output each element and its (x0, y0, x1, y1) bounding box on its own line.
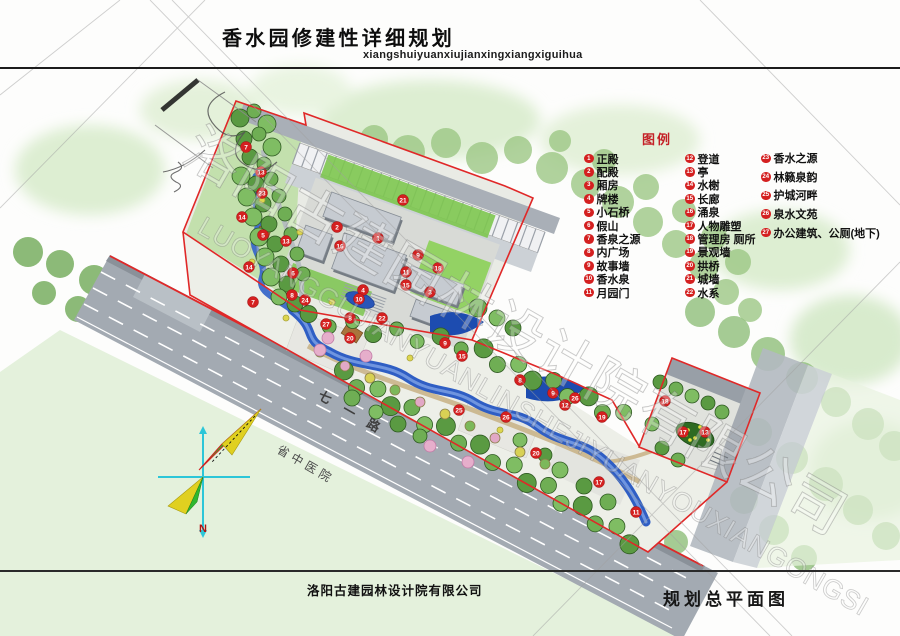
bottom-rule (0, 570, 900, 572)
legend-marker-icon: 20 (685, 261, 695, 271)
legend-title: 图例 (642, 129, 672, 148)
legend-item-label: 月园门 (597, 285, 630, 301)
sheet-title: 香水园修建性详细规划 (222, 22, 455, 51)
legend-item: 11月园门 (584, 286, 641, 299)
drawing-name: 规划总平面图 (663, 585, 789, 610)
legend-marker-icon: 19 (685, 248, 695, 258)
legend-marker-icon: 11 (584, 288, 594, 298)
map-marker: 20 (531, 448, 542, 459)
map-marker: 17 (594, 477, 605, 488)
top-rule (0, 67, 900, 69)
map-marker: 11 (631, 507, 642, 518)
legend-marker-icon: 14 (685, 181, 695, 191)
legend-item: 27办公建筑、公厕(地下) (761, 223, 880, 242)
legend-item-label: 林籁泉韵 (774, 169, 818, 185)
legend-marker-icon: 25 (761, 191, 771, 201)
legend-item: 23香水之源 (761, 149, 880, 168)
legend-column-3: 23香水之源24林籁泉韵25护城河畔26泉水文苑27办公建筑、公厕(地下) (761, 149, 880, 242)
legend-item: 24林籁泉韵 (761, 168, 880, 187)
svg-text:13: 13 (282, 238, 290, 245)
legend-item: 21城墙 (685, 273, 756, 286)
legend-marker-icon: 12 (685, 154, 695, 164)
legend-marker-icon: 16 (685, 208, 695, 218)
legend-marker-icon: 1 (584, 154, 594, 164)
legend-item-label: 泉水文苑 (774, 206, 818, 222)
svg-text:11: 11 (633, 509, 640, 516)
legend-marker-icon: 27 (761, 228, 771, 238)
legend-marker-icon: 15 (685, 194, 695, 204)
legend-marker-icon: 8 (584, 248, 594, 258)
svg-text:4: 4 (361, 287, 365, 294)
svg-text:20: 20 (346, 335, 354, 342)
legend-marker-icon: 4 (584, 194, 594, 204)
legend-column-1: 1正殿2配殿3厢房4牌楼5小石桥6假山7香泉之源8内广场9故事墙10香水泉11月… (584, 152, 641, 299)
sheet-title-pinyin: xiangshuiyuanxiujianxingxiangxiguihua (363, 49, 583, 61)
legend-item-label: 香水之源 (774, 150, 818, 166)
legend-marker-icon: 17 (685, 221, 695, 231)
legend-marker-icon: 13 (685, 167, 695, 177)
north-label: N (199, 523, 207, 535)
svg-text:25: 25 (455, 407, 463, 414)
svg-text:27: 27 (322, 321, 330, 328)
legend-item: 14水榭 (685, 179, 756, 192)
legend-item: 19景观墙 (685, 246, 756, 259)
legend-marker-icon: 9 (584, 261, 594, 271)
map-marker: 27 (321, 319, 332, 330)
legend-item: 13亭 (685, 165, 756, 178)
legend-item-label: 办公建筑、公厕(地下) (774, 225, 880, 241)
svg-text:7: 7 (251, 299, 255, 306)
map-marker: 5 (258, 230, 269, 241)
map-marker: 12 (560, 400, 571, 411)
legend-item: 20拱桥 (685, 259, 756, 272)
legend-marker-icon: 3 (584, 181, 594, 191)
svg-text:21: 21 (399, 197, 407, 204)
svg-text:20: 20 (532, 450, 540, 457)
legend-column-2: 12登道13亭14水榭15长廊16涌泉17人物雕塑18管理房 厕所19景观墙20… (685, 152, 756, 299)
legend-item-label: 水系 (698, 285, 720, 301)
legend-marker-icon: 23 (761, 154, 771, 164)
map-marker: 25 (454, 405, 465, 416)
legend-marker-icon: 26 (761, 209, 771, 219)
legend-item-label: 护城河畔 (774, 187, 818, 203)
legend-marker-icon: 7 (584, 234, 594, 244)
legend-marker-icon: 22 (685, 288, 695, 298)
legend-marker-icon: 6 (584, 221, 594, 231)
legend-item: 12登道 (685, 152, 756, 165)
design-institute-name: 洛阳古建园林设计院有限公司 (307, 580, 483, 599)
map-marker: 14 (237, 212, 248, 223)
legend-item: 26泉水文苑 (761, 205, 880, 224)
svg-text:5: 5 (261, 232, 265, 239)
legend-marker-icon: 24 (761, 172, 771, 182)
legend-marker-icon: 2 (584, 167, 594, 177)
svg-text:17: 17 (595, 479, 603, 486)
legend-marker-icon: 10 (584, 274, 594, 284)
legend-marker-icon: 18 (685, 234, 695, 244)
legend-item: 25护城河畔 (761, 186, 880, 205)
map-marker: 7 (248, 297, 259, 308)
map-marker: 21 (398, 195, 409, 206)
site-plan-drawing: 7132314513614782427211621911154101832282… (0, 0, 900, 636)
plan-sheet: 7132314513614782427211621911154101832282… (0, 0, 900, 636)
legend-marker-icon: 21 (685, 274, 695, 284)
legend-item: 15长廊 (685, 192, 756, 205)
legend-marker-icon: 5 (584, 208, 594, 218)
map-marker: 20 (345, 333, 356, 344)
legend-item: 22水系 (685, 286, 756, 299)
svg-text:14: 14 (238, 214, 246, 221)
